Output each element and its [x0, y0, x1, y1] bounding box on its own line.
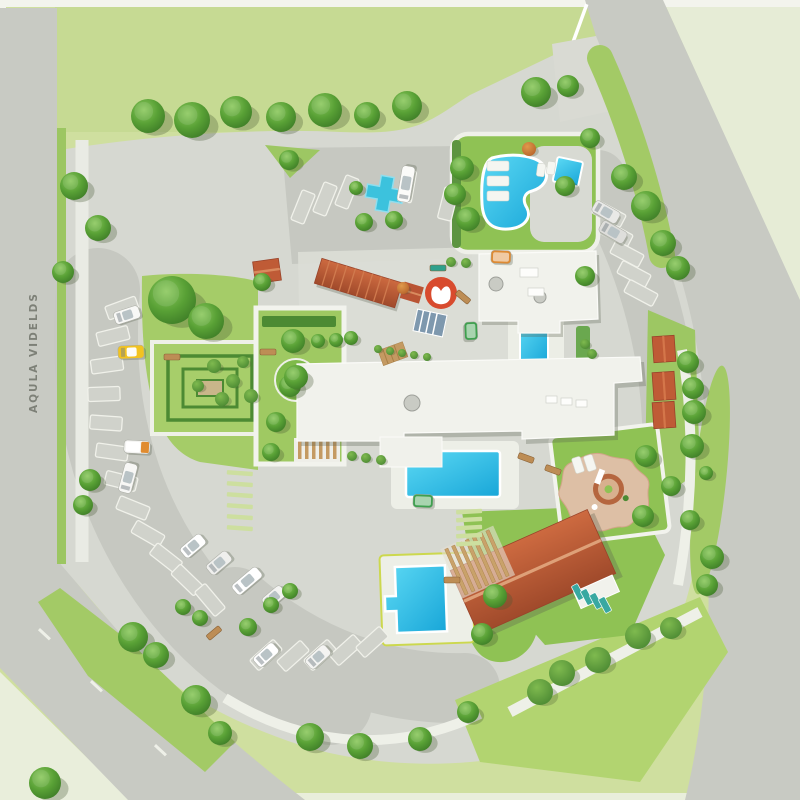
lounger [487, 191, 509, 201]
main-building-roof [297, 357, 642, 441]
roof-vent-1 [489, 277, 503, 291]
left-road [0, 8, 57, 560]
roof-vent-3 [404, 395, 420, 411]
roof-panel-2 [528, 288, 544, 296]
terrace-hedge [262, 316, 336, 327]
lounger [546, 161, 556, 175]
lounger [487, 161, 509, 171]
site-plan-stage: AQULA VIDELDS [0, 0, 800, 800]
roof-box-1 [546, 396, 557, 403]
top-margin [0, 0, 800, 7]
bench [430, 265, 446, 271]
bus-vehicle [463, 322, 478, 342]
taxi [118, 345, 146, 360]
lounger [487, 176, 509, 186]
bench [444, 577, 460, 583]
parking-stall [88, 386, 120, 401]
lounger [536, 163, 546, 177]
bench [260, 349, 276, 355]
site-plan-map: AQULA VIDELDS [0, 0, 800, 800]
bench [164, 354, 180, 360]
roof-panel-1 [520, 268, 538, 277]
parking-stall [90, 415, 123, 431]
annex-roof [380, 437, 442, 467]
truck-vehicle [124, 440, 153, 456]
bottom-margin [0, 793, 800, 800]
bus-vehicle [413, 494, 435, 509]
roof-box-3 [576, 400, 587, 407]
cabana-roofs [652, 335, 676, 428]
bus-vehicle [491, 250, 513, 265]
roof-box-2 [561, 398, 572, 405]
road-label: AQULA VIDELDS [28, 292, 40, 413]
